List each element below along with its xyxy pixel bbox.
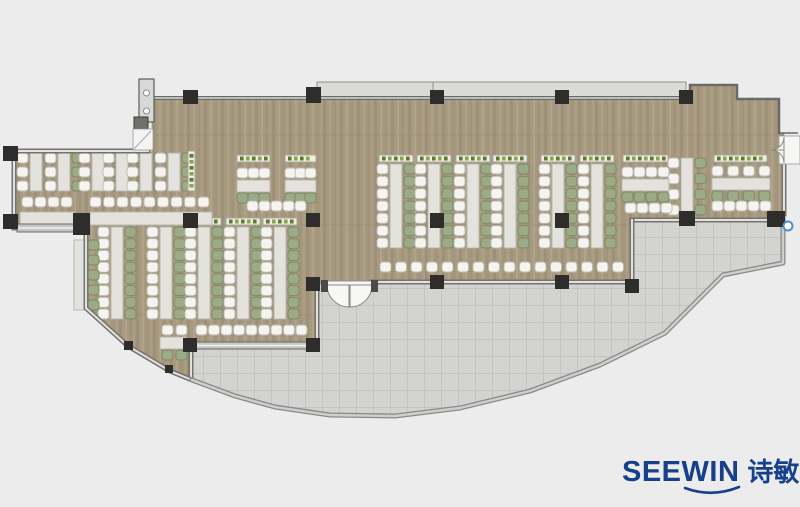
- chair-white: [454, 213, 465, 223]
- desk-strip: [30, 153, 42, 191]
- chair-white: [566, 262, 577, 272]
- chair-green: [237, 193, 248, 203]
- desk-strip: [428, 164, 440, 248]
- chair-white: [259, 325, 270, 335]
- chair-green: [728, 191, 739, 201]
- chair-green: [646, 192, 657, 202]
- chair-white: [454, 226, 465, 236]
- chair-green: [125, 262, 136, 272]
- chair-green: [288, 286, 299, 296]
- chair-green: [174, 297, 185, 307]
- chair-green: [605, 176, 616, 186]
- chair-white: [454, 238, 465, 248]
- planter-plant: [650, 157, 654, 161]
- chair-green: [518, 201, 529, 211]
- chair-white: [760, 201, 771, 211]
- chair-white: [551, 262, 562, 272]
- planter-plant: [496, 157, 500, 161]
- chair-white: [539, 238, 550, 248]
- chair-green: [174, 309, 185, 319]
- chair-green: [481, 189, 492, 199]
- chair-green: [88, 240, 99, 250]
- planter-plant: [735, 157, 739, 161]
- chair-white: [578, 189, 589, 199]
- chair-green: [566, 164, 577, 174]
- chair-white: [98, 286, 109, 296]
- chair-white: [185, 239, 196, 249]
- chair-green: [404, 176, 415, 186]
- chair-white: [661, 203, 672, 213]
- counter: [20, 212, 75, 225]
- planter-plant: [258, 157, 262, 161]
- chair-green: [251, 297, 262, 307]
- chair-white: [22, 197, 33, 207]
- planter-plant: [562, 157, 566, 161]
- brand-smile-arc: [682, 485, 742, 499]
- planter-plant: [644, 157, 648, 161]
- chair-green: [212, 274, 223, 284]
- chair-white: [736, 201, 747, 211]
- chair-white: [597, 262, 608, 272]
- chair-white: [284, 325, 295, 335]
- chair-white: [79, 181, 90, 191]
- chair-white: [454, 189, 465, 199]
- chair-white: [61, 197, 72, 207]
- chair-green: [404, 238, 415, 248]
- chair-white: [185, 286, 196, 296]
- chair-green: [605, 213, 616, 223]
- chair-green: [658, 192, 669, 202]
- chair-white: [411, 262, 422, 272]
- chair-white: [535, 262, 546, 272]
- chair-green: [518, 176, 529, 186]
- chair-white: [259, 168, 270, 178]
- chair-green: [404, 189, 415, 199]
- service-shaft: [133, 79, 154, 150]
- planter-plant: [520, 157, 524, 161]
- chair-white: [539, 201, 550, 211]
- chair-green: [566, 189, 577, 199]
- brand-logo: SEEWIN 诗敏: [622, 452, 800, 500]
- chair-green: [288, 262, 299, 272]
- planter-plant: [662, 157, 666, 161]
- chair-white: [127, 181, 138, 191]
- chair-white: [35, 197, 46, 207]
- chair-green: [305, 193, 316, 203]
- planter-plant: [595, 157, 599, 161]
- north-ledge: [317, 82, 686, 97]
- chair-white: [45, 153, 56, 163]
- chair-green: [518, 189, 529, 199]
- chair-green: [712, 191, 723, 201]
- chair-white: [415, 238, 426, 248]
- corner-table: [160, 337, 186, 349]
- chair-green: [251, 239, 262, 249]
- chair-white: [380, 262, 391, 272]
- planter-plant: [601, 157, 605, 161]
- chair-white: [48, 197, 59, 207]
- chair-green: [88, 285, 99, 295]
- planter-plant: [190, 154, 194, 158]
- planter-plant: [278, 220, 282, 224]
- planter-plant: [190, 184, 194, 188]
- chair-white: [98, 262, 109, 272]
- chair-green: [125, 274, 136, 284]
- planter-plant: [544, 157, 548, 161]
- chair-white: [224, 262, 235, 272]
- planter-plant: [723, 157, 727, 161]
- chair-green: [518, 164, 529, 174]
- chair-white: [748, 201, 759, 211]
- chair-white: [224, 286, 235, 296]
- planter-plant: [288, 157, 292, 161]
- chair-white: [185, 227, 196, 237]
- chair-white: [578, 201, 589, 211]
- planter-plant: [471, 157, 475, 161]
- chair-green: [125, 239, 136, 249]
- chair-green: [404, 164, 415, 174]
- chair-white: [261, 227, 272, 237]
- desk-strip: [116, 153, 128, 191]
- desk-strip: [58, 153, 70, 191]
- chair-green: [251, 262, 262, 272]
- chair-green: [634, 192, 645, 202]
- chair-white: [489, 262, 500, 272]
- planter-plant: [382, 157, 386, 161]
- chair-white: [209, 325, 220, 335]
- chair-white: [98, 250, 109, 260]
- planter-plant: [477, 157, 481, 161]
- planter-plant: [759, 157, 763, 161]
- chair-white: [539, 189, 550, 199]
- chair-white: [415, 226, 426, 236]
- planter-plant: [550, 157, 554, 161]
- chair-white: [613, 262, 624, 272]
- planter-plant: [508, 157, 512, 161]
- chair-green: [174, 274, 185, 284]
- chair-white: [103, 153, 114, 163]
- planter-plant: [406, 157, 410, 161]
- planter-plant: [240, 157, 244, 161]
- chair-white: [17, 181, 28, 191]
- desk-strip: [160, 227, 172, 319]
- planter-plant: [294, 157, 298, 161]
- planter-plant: [253, 220, 257, 224]
- planter-plant: [420, 157, 424, 161]
- chair-white: [377, 213, 388, 223]
- chair-green: [288, 297, 299, 307]
- chair-white: [491, 176, 502, 186]
- chair-white: [578, 176, 589, 186]
- chair-white: [224, 309, 235, 319]
- planter-plant: [229, 220, 233, 224]
- chair-green: [125, 297, 136, 307]
- chair-white: [295, 168, 306, 178]
- desk-strip: [552, 164, 564, 248]
- chair-green: [174, 227, 185, 237]
- chair-white: [415, 164, 426, 174]
- planter-plant: [438, 157, 442, 161]
- chair-white: [261, 297, 272, 307]
- chair-white: [377, 164, 388, 174]
- chair-white: [17, 167, 28, 177]
- chair-white: [377, 201, 388, 211]
- chair-white: [247, 201, 258, 211]
- chair-white: [377, 189, 388, 199]
- chair-green: [442, 189, 453, 199]
- chair-white: [377, 176, 388, 186]
- chair-white: [271, 325, 282, 335]
- planter-plant: [190, 166, 194, 170]
- planter-plant: [747, 157, 751, 161]
- planter-plant: [284, 220, 288, 224]
- planter-plant: [400, 157, 404, 161]
- chair-white: [271, 201, 282, 211]
- chair-green: [404, 213, 415, 223]
- chair-white: [539, 213, 550, 223]
- chair-green: [288, 250, 299, 260]
- chair-green: [743, 191, 754, 201]
- planter-plant: [514, 157, 518, 161]
- chair-white: [668, 174, 679, 184]
- planter-plant: [717, 157, 721, 161]
- desk-strip: [168, 153, 180, 191]
- chair-white: [261, 262, 272, 272]
- planter-plant: [426, 157, 430, 161]
- chair-white: [246, 325, 257, 335]
- chair-white: [415, 201, 426, 211]
- planter-plant: [252, 157, 256, 161]
- chair-white: [296, 325, 307, 335]
- chair-white: [224, 250, 235, 260]
- chair-white: [185, 297, 196, 307]
- planter-plant: [444, 157, 448, 161]
- table: [237, 180, 270, 192]
- chair-white: [98, 297, 109, 307]
- chair-white: [158, 197, 169, 207]
- chair-white: [237, 168, 248, 178]
- chair-green: [605, 189, 616, 199]
- desk-strip: [467, 164, 479, 248]
- chair-green: [481, 213, 492, 223]
- chair-white: [79, 167, 90, 177]
- chair-white: [261, 250, 272, 260]
- chair-white: [185, 197, 196, 207]
- chair-white: [147, 286, 158, 296]
- chair-green: [695, 158, 706, 168]
- chair-white: [224, 274, 235, 284]
- planter-plant: [583, 157, 587, 161]
- desk-strip: [274, 227, 286, 319]
- chair-green: [125, 309, 136, 319]
- chair-white: [45, 181, 56, 191]
- chair-white: [491, 189, 502, 199]
- chair-white: [185, 250, 196, 260]
- planter-plant: [306, 157, 310, 161]
- chair-green: [125, 250, 136, 260]
- floor-plan-drawing: [0, 0, 800, 507]
- chair-white: [45, 167, 56, 177]
- planter-plant: [432, 157, 436, 161]
- chair-green: [288, 227, 299, 237]
- planter-plant: [272, 220, 276, 224]
- chair-white: [147, 239, 158, 249]
- brand-chinese-name: 诗敏: [747, 452, 799, 489]
- chair-white: [147, 262, 158, 272]
- chair-white: [539, 226, 550, 236]
- planter-plant: [246, 157, 250, 161]
- chair-green: [251, 286, 262, 296]
- planter-plant: [241, 220, 245, 224]
- chair-white: [261, 309, 272, 319]
- chair-white: [131, 197, 142, 207]
- table: [285, 180, 316, 192]
- chair-white: [578, 226, 589, 236]
- chair-white: [491, 238, 502, 248]
- planter-plant: [290, 220, 294, 224]
- chair-white: [454, 176, 465, 186]
- chair-green: [518, 213, 529, 223]
- planter-plant: [235, 220, 239, 224]
- chair-white: [442, 262, 453, 272]
- chair-white: [504, 262, 515, 272]
- chair-white: [427, 262, 438, 272]
- chair-green: [88, 270, 99, 280]
- chair-white: [155, 181, 166, 191]
- planter-plant: [264, 157, 268, 161]
- chair-white: [668, 189, 679, 199]
- chair-white: [539, 176, 550, 186]
- planter-plant: [638, 157, 642, 161]
- chair-white: [162, 325, 173, 335]
- chair-white: [458, 262, 469, 272]
- chair-green: [212, 262, 223, 272]
- chair-white: [261, 274, 272, 284]
- chair-white: [454, 164, 465, 174]
- chair-green: [251, 250, 262, 260]
- desk-strip: [198, 227, 210, 319]
- chair-green: [481, 176, 492, 186]
- chair-white: [224, 239, 235, 249]
- chair-white: [649, 203, 660, 213]
- chair-white: [98, 227, 109, 237]
- chair-green: [695, 174, 706, 184]
- planter-plant: [568, 157, 572, 161]
- chair-white: [103, 181, 114, 191]
- chair-green: [605, 238, 616, 248]
- chair-white: [668, 158, 679, 168]
- chair-white: [415, 213, 426, 223]
- chair-white: [415, 176, 426, 186]
- chair-green: [174, 286, 185, 296]
- chair-green: [288, 274, 299, 284]
- chair-white: [622, 167, 633, 177]
- chair-white: [578, 213, 589, 223]
- planter-plant: [729, 157, 733, 161]
- chair-green: [481, 226, 492, 236]
- chair-white: [728, 166, 739, 176]
- chair-white: [185, 262, 196, 272]
- chair-green: [404, 226, 415, 236]
- chair-white: [127, 167, 138, 177]
- chair-white: [637, 203, 648, 213]
- chair-green: [481, 238, 492, 248]
- chair-white: [144, 197, 155, 207]
- chair-white: [127, 153, 138, 163]
- desk-strip: [681, 158, 693, 215]
- chair-white: [454, 201, 465, 211]
- chair-white: [295, 201, 306, 211]
- planter-plant: [465, 157, 469, 161]
- hotspot-marker[interactable]: [784, 222, 793, 231]
- chair-white: [712, 201, 723, 211]
- chair-white: [305, 168, 316, 178]
- chair-white: [396, 262, 407, 272]
- desk-strip: [591, 164, 603, 248]
- desk-strip: [504, 164, 516, 248]
- chair-green: [125, 286, 136, 296]
- chair-white: [104, 197, 115, 207]
- chair-green: [605, 226, 616, 236]
- table: [622, 179, 669, 191]
- chair-green: [88, 255, 99, 265]
- chair-white: [285, 168, 296, 178]
- chair-white: [117, 197, 128, 207]
- chair-white: [147, 309, 158, 319]
- chair-white: [259, 201, 270, 211]
- chair-green: [251, 309, 262, 319]
- chair-white: [90, 197, 101, 207]
- chair-white: [147, 297, 158, 307]
- chair-green: [288, 239, 299, 249]
- chair-green: [212, 286, 223, 296]
- chair-white: [147, 227, 158, 237]
- planter-plant: [300, 157, 304, 161]
- chair-green: [212, 297, 223, 307]
- floor-plan-canvas: SEEWIN 诗敏: [0, 0, 800, 507]
- chair-white: [155, 167, 166, 177]
- chair-green: [162, 350, 173, 360]
- planter-plant: [556, 157, 560, 161]
- chair-green: [251, 274, 262, 284]
- chair-white: [491, 164, 502, 174]
- chair-white: [491, 213, 502, 223]
- chair-white: [261, 239, 272, 249]
- chair-white: [283, 201, 294, 211]
- planter-plant: [247, 220, 251, 224]
- chair-green: [695, 189, 706, 199]
- chair-green: [174, 262, 185, 272]
- desk-strip: [237, 227, 249, 319]
- chair-green: [566, 176, 577, 186]
- chair-green: [695, 205, 706, 215]
- chair-white: [539, 164, 550, 174]
- planter-plant: [190, 172, 194, 176]
- chair-white: [248, 168, 259, 178]
- chair-white: [224, 227, 235, 237]
- chair-white: [103, 167, 114, 177]
- chair-green: [442, 201, 453, 211]
- desk-strip: [140, 153, 152, 191]
- chair-white: [646, 167, 657, 177]
- planter-plant: [483, 157, 487, 161]
- planter-plant: [190, 160, 194, 164]
- chair-white: [491, 201, 502, 211]
- planter-plant: [214, 220, 218, 224]
- chair-green: [174, 250, 185, 260]
- chair-green: [212, 309, 223, 319]
- chair-white: [473, 262, 484, 272]
